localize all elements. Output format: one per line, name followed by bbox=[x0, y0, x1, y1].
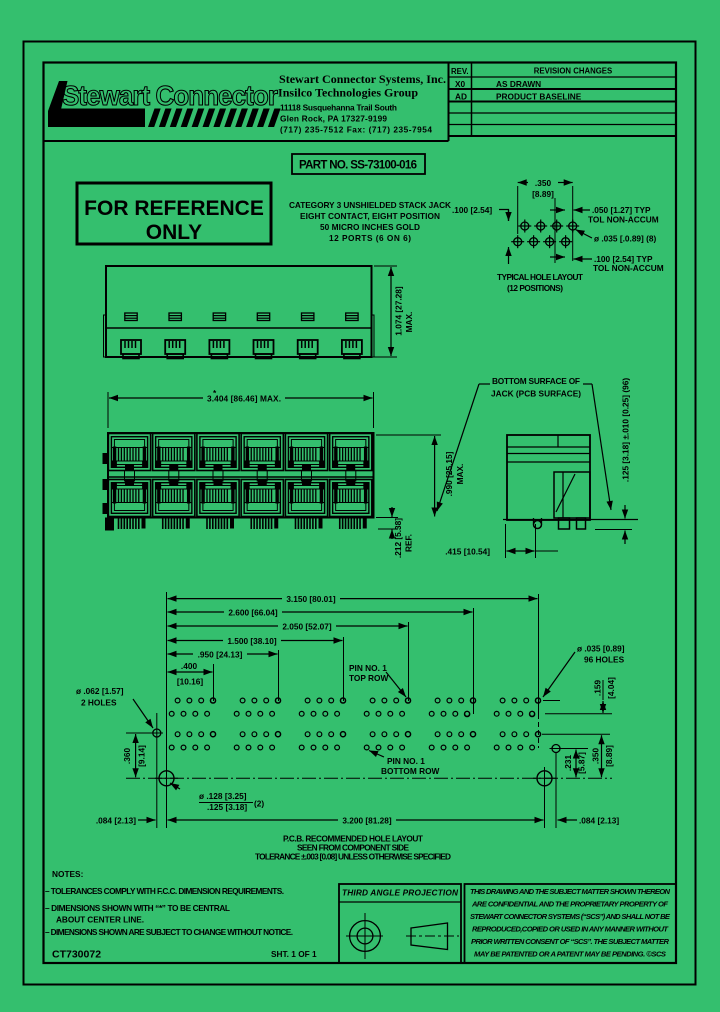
svg-text:BOTTOM SURFACE OF: BOTTOM SURFACE OF bbox=[492, 376, 580, 386]
svg-text:PRODUCT BASELINE: PRODUCT BASELINE bbox=[496, 92, 582, 102]
svg-text:MAX.: MAX. bbox=[404, 312, 414, 333]
svg-text:12 PORTS (6 ON 6): 12 PORTS (6 ON 6) bbox=[329, 233, 411, 243]
svg-text:[8.89]: [8.89] bbox=[604, 745, 614, 767]
svg-text:CATEGORY 3 UNSHIELDED STACK JA: CATEGORY 3 UNSHIELDED STACK JACK bbox=[289, 200, 451, 210]
svg-text:PART NO. SS-73100-016: PART NO. SS-73100-016 bbox=[299, 160, 417, 172]
svg-text:2 HOLES: 2 HOLES bbox=[81, 698, 117, 708]
svg-text:.350: .350 bbox=[535, 178, 552, 188]
svg-text:THIS DRAWING AND THE SUBJECT M: THIS DRAWING AND THE SUBJECT MATTER SHOW… bbox=[470, 887, 671, 896]
svg-text:X0: X0 bbox=[455, 79, 466, 89]
svg-text:THIRD ANGLE PROJECTION: THIRD ANGLE PROJECTION bbox=[342, 888, 459, 898]
svg-text:TOL NON-ACCUM: TOL NON-ACCUM bbox=[588, 215, 659, 225]
svg-text:[9.14]: [9.14] bbox=[137, 745, 147, 767]
svg-text:AD: AD bbox=[455, 92, 467, 102]
svg-text:.350: .350 bbox=[591, 748, 601, 765]
svg-text:1.500 [38.10]: 1.500 [38.10] bbox=[227, 636, 277, 646]
svg-text:1.074 [27.28]: 1.074 [27.28] bbox=[394, 286, 404, 336]
svg-text:AS DRAWN: AS DRAWN bbox=[496, 79, 541, 89]
svg-text:REPRODUCED,COPIED OR USED IN A: REPRODUCED,COPIED OR USED IN ANY MANNER … bbox=[472, 925, 669, 934]
svg-text:TOL NON-ACCUM: TOL NON-ACCUM bbox=[593, 263, 664, 273]
svg-text:Stewart Connector Systems, Inc: Stewart Connector Systems, Inc. bbox=[279, 72, 446, 86]
svg-text:Glen Rock, PA 17327-9199: Glen Rock, PA 17327-9199 bbox=[280, 114, 387, 124]
svg-text:EIGHT CONTACT, EIGHT POSITION: EIGHT CONTACT, EIGHT POSITION bbox=[300, 211, 440, 221]
svg-text:.125 [3.18] ±.010 [0.25] (96): .125 [3.18] ±.010 [0.25] (96) bbox=[621, 378, 631, 482]
svg-text:BOTTOM ROW: BOTTOM ROW bbox=[381, 766, 440, 776]
svg-text:NOTES:: NOTES: bbox=[52, 869, 83, 879]
svg-text:MAX.: MAX. bbox=[455, 464, 465, 485]
svg-text:STEWART CONNECTOR SYSTEMS (“SC: STEWART CONNECTOR SYSTEMS (“SCS”) AND SH… bbox=[470, 912, 671, 921]
svg-text:– DIMENSIONS SHOWN WITH “*” TO: – DIMENSIONS SHOWN WITH “*” TO BE CENTRA… bbox=[45, 903, 230, 913]
svg-text:50 MICRO INCHES GOLD: 50 MICRO INCHES GOLD bbox=[320, 222, 420, 232]
svg-text:ø .035 [0.89]: ø .035 [0.89] bbox=[577, 644, 625, 654]
svg-text:.415 [10.54]: .415 [10.54] bbox=[445, 547, 490, 557]
svg-text:96 HOLES: 96 HOLES bbox=[584, 655, 625, 665]
svg-text:[5.87]: [5.87] bbox=[577, 752, 587, 774]
svg-text:2.050 [52.07]: 2.050 [52.07] bbox=[282, 622, 332, 632]
svg-text:(12 POSITIONS): (12 POSITIONS) bbox=[507, 283, 563, 293]
svg-text:ø .062 [1.57]: ø .062 [1.57] bbox=[76, 686, 124, 696]
svg-text:.100 [2.54]: .100 [2.54] bbox=[452, 205, 492, 215]
svg-text:TOP ROW: TOP ROW bbox=[349, 673, 389, 683]
svg-text:.159: .159 bbox=[593, 680, 603, 697]
svg-text:.950 [24.13]: .950 [24.13] bbox=[198, 650, 243, 660]
svg-text:MAY BE PATENTED OR A PATENT MA: MAY BE PATENTED OR A PATENT MAY BE PENDI… bbox=[474, 950, 666, 959]
svg-text:.125 [3.18]: .125 [3.18] bbox=[207, 802, 247, 812]
svg-text:ø .035 [.0.89] (8): ø .035 [.0.89] (8) bbox=[594, 234, 656, 244]
svg-text:2.600 [66.04]: 2.600 [66.04] bbox=[228, 608, 278, 618]
svg-text:[4.04]: [4.04] bbox=[606, 677, 616, 699]
svg-text:ARE CONFIDENTIAL AND THE PROPR: ARE CONFIDENTIAL AND THE PROPRIETARY PRO… bbox=[471, 900, 668, 909]
svg-text:CT730072: CT730072 bbox=[52, 949, 101, 961]
svg-text:3.200 [81.28]: 3.200 [81.28] bbox=[342, 816, 392, 826]
svg-text:REF.: REF. bbox=[404, 534, 414, 552]
svg-text:– TOLERANCES COMPLY WITH F.C.C: – TOLERANCES COMPLY WITH F.C.C. DIMENSIO… bbox=[45, 886, 284, 896]
svg-text:PIN NO. 1: PIN NO. 1 bbox=[349, 663, 387, 673]
svg-text:.212 [5.38]: .212 [5.38] bbox=[393, 518, 403, 558]
svg-text:.231: .231 bbox=[563, 755, 573, 772]
svg-text:.084 [2.13]: .084 [2.13] bbox=[96, 816, 136, 826]
svg-text:[10.16]: [10.16] bbox=[177, 677, 204, 687]
svg-text:REVISION CHANGES: REVISION CHANGES bbox=[534, 67, 612, 76]
svg-text:(2): (2) bbox=[254, 799, 264, 809]
svg-text:ABOUT CENTER LINE.: ABOUT CENTER LINE. bbox=[56, 915, 144, 925]
svg-text:TYPICAL HOLE LAYOUT: TYPICAL HOLE LAYOUT bbox=[497, 272, 583, 282]
svg-text:Stewart Connector: Stewart Connector bbox=[62, 80, 278, 111]
svg-text:ONLY: ONLY bbox=[146, 221, 202, 244]
svg-text:REV.: REV. bbox=[451, 67, 468, 76]
svg-text:.084 [2.13]: .084 [2.13] bbox=[579, 816, 619, 826]
svg-text:11118 Susquehanna Trail South: 11118 Susquehanna Trail South bbox=[280, 103, 397, 113]
svg-text:(717) 235-7512 Fax: (717) 23: (717) 235-7512 Fax: (717) 235-7954 bbox=[280, 125, 432, 135]
svg-text:Insilco Technologies Group: Insilco Technologies Group bbox=[278, 86, 418, 100]
svg-text:3.404 [86.46] MAX.: 3.404 [86.46] MAX. bbox=[207, 394, 281, 404]
svg-text:FOR REFERENCE: FOR REFERENCE bbox=[84, 197, 264, 220]
svg-text:PIN NO. 1: PIN NO. 1 bbox=[387, 756, 425, 766]
svg-text:– DIMENSIONS SHOWN ARE SUBJECT: – DIMENSIONS SHOWN ARE SUBJECT TO CHANGE… bbox=[45, 927, 293, 937]
svg-text:TOLERANCE ±.003 [0.08] UNLESS: TOLERANCE ±.003 [0.08] UNLESS OTHERWISE … bbox=[255, 852, 451, 862]
svg-text:PRIOR WRITTEN CONSENT OF “SCS”: PRIOR WRITTEN CONSENT OF “SCS”. THE SUBJ… bbox=[471, 937, 670, 946]
svg-text:[8.89]: [8.89] bbox=[532, 189, 554, 199]
svg-text:.400: .400 bbox=[181, 661, 198, 671]
svg-text:.360: .360 bbox=[122, 748, 132, 765]
svg-text:JACK (PCB SURFACE): JACK (PCB SURFACE) bbox=[491, 389, 581, 399]
svg-text:ø .128 [3.25]: ø .128 [3.25] bbox=[199, 791, 247, 801]
svg-text:.050 [1.27] TYP: .050 [1.27] TYP bbox=[592, 205, 651, 215]
svg-text:3.150 [80.01]: 3.150 [80.01] bbox=[286, 594, 336, 604]
svg-text:SHT. 1 OF 1: SHT. 1 OF 1 bbox=[271, 949, 317, 959]
